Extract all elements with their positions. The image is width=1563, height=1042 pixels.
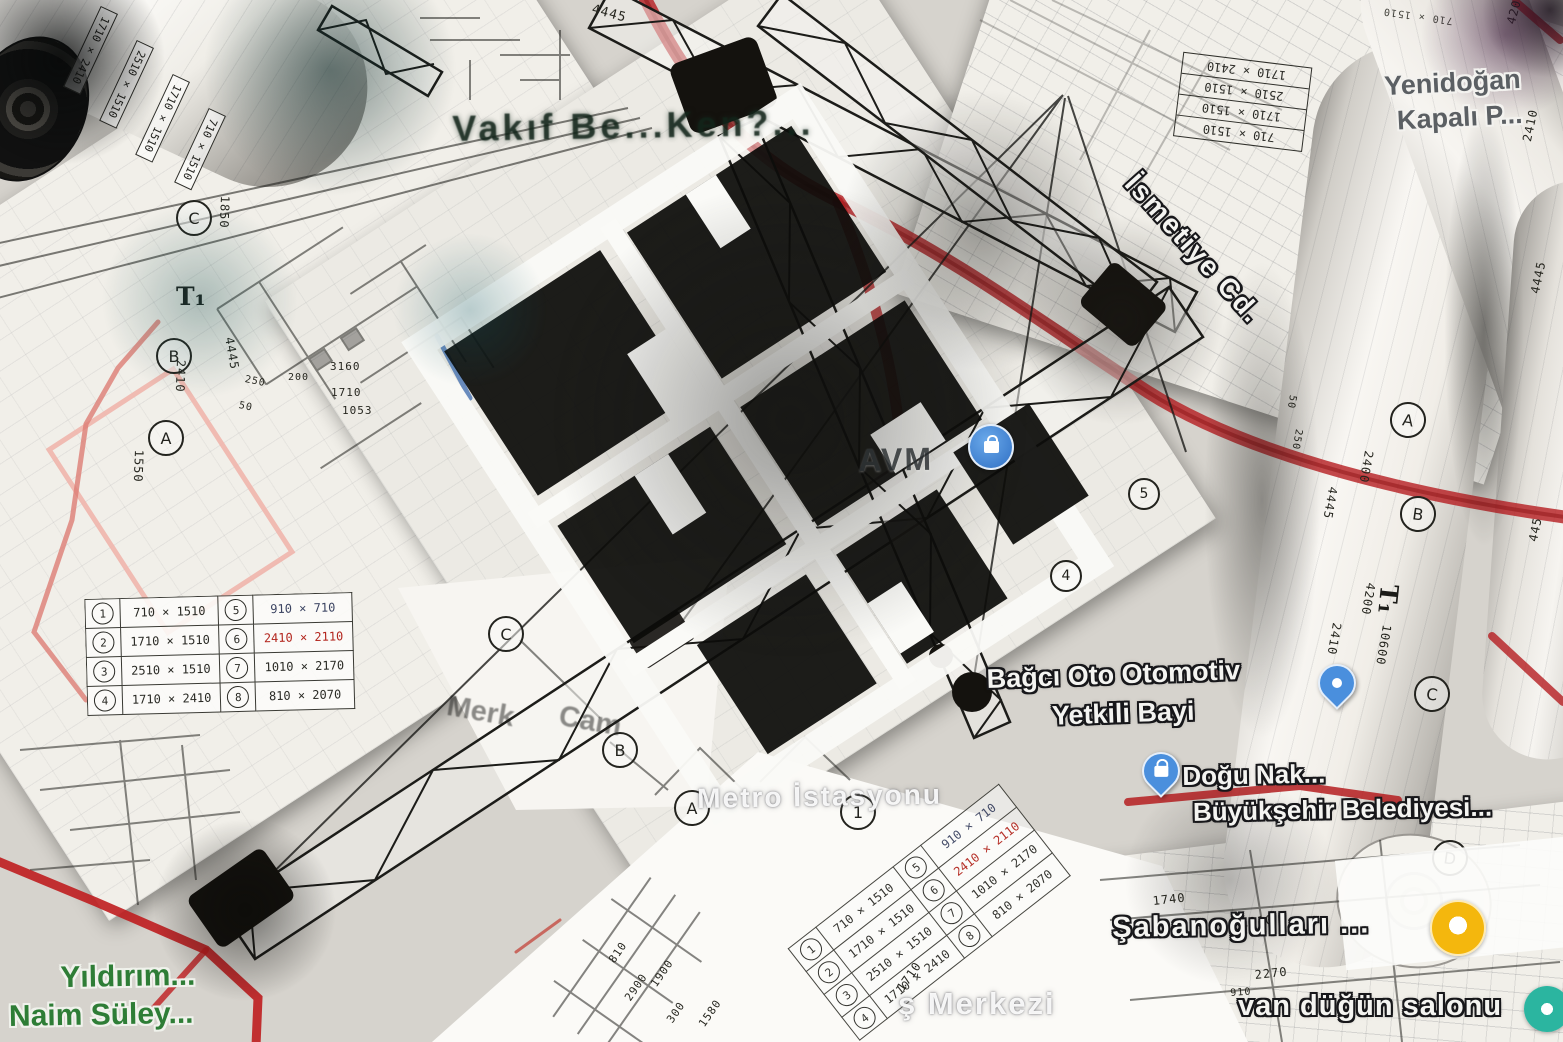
map-label-sabanogullari: Şabanoğulları ... bbox=[1112, 907, 1371, 944]
axis-bubble-4-right: 4 bbox=[1050, 560, 1082, 592]
map-label-yenidogan-line2: Kapalı P... bbox=[1396, 99, 1523, 136]
map-label-bagci-line2: Yetkili Bayi bbox=[1051, 696, 1195, 731]
lock-glyph bbox=[1154, 766, 1168, 777]
map-label-fragment-merk: Merk bbox=[444, 690, 516, 734]
axis-bubble-5-right: 5 bbox=[1128, 478, 1160, 510]
map-label-bagci: Bağcı Oto Otomotiv Yetkili Bayi bbox=[986, 651, 1242, 738]
map-label-bagci-line1: Bağcı Oto Otomotiv bbox=[986, 655, 1240, 694]
t1-mark-left: T₁ bbox=[176, 282, 206, 311]
dim-3160: 3160 bbox=[330, 360, 361, 373]
map-label-dogu-line1: Doğu Nak... bbox=[1182, 759, 1326, 791]
map-label-is-merkezi: ş Merkezi bbox=[898, 986, 1056, 1022]
shopping-poi-icon bbox=[968, 424, 1014, 470]
dim-2410-left: 2410 bbox=[173, 360, 188, 393]
dim-1053: 1053 bbox=[342, 404, 373, 417]
dim-1580-bl: 1580 bbox=[696, 997, 724, 1029]
schedule-table-left: 1 710 × 1510 5 910 × 710 2 1710 × 1510 6… bbox=[84, 592, 355, 716]
map-label-yenidogan: Yenidoğan Kapalı P... bbox=[1290, 62, 1523, 144]
blueprint-map-collage: 1 710 × 1510 5 910 × 710 2 1710 × 1510 6… bbox=[0, 0, 1563, 1042]
map-label-metro-istasyonu: Metro İstasyonu bbox=[697, 779, 942, 815]
map-label-avm: AVM bbox=[858, 441, 933, 479]
dim-1850: 1850 bbox=[217, 196, 232, 229]
map-label-vakif: Vakıf Be...Ken?... bbox=[452, 102, 815, 150]
yellow-poi-icon bbox=[1430, 900, 1486, 956]
axis-bubble-C-bottom: C bbox=[488, 616, 524, 652]
axis-bubble-A-left: A bbox=[148, 420, 184, 456]
map-label-dugun-salonu: van düğün salonu bbox=[1238, 990, 1502, 1023]
axis-bubble-C-left: C bbox=[176, 200, 212, 236]
teal-poi-icon bbox=[1524, 986, 1563, 1032]
map-label-yenidogan-line1: Yenidoğan bbox=[1383, 64, 1521, 101]
pin-dot-glyph bbox=[1332, 678, 1342, 688]
schedule-row: 4 1710 × 2410 8 810 × 2070 bbox=[87, 679, 355, 715]
dim-1900-bl: 1900 bbox=[648, 957, 676, 989]
dim-1710-left: 1710 bbox=[331, 386, 362, 399]
dim-200: 200 bbox=[288, 372, 309, 383]
lock-pin-icon bbox=[1134, 744, 1188, 798]
map-label-dogu-line2: Büyükşehir Belediyesi... bbox=[1193, 792, 1493, 827]
dim-300-bl: 300 bbox=[664, 999, 688, 1025]
map-label-yildirim-line1: Yıldırım... bbox=[60, 959, 196, 994]
shopping-bag-glyph bbox=[984, 441, 999, 453]
dim-1550-left: 1550 bbox=[131, 450, 146, 483]
map-label-yildirim-line2: Naim Süley... bbox=[9, 996, 194, 1032]
dim-2900-bl: 2900 bbox=[622, 971, 650, 1003]
dim-810-bl: 810 bbox=[606, 939, 630, 965]
map-label-dogu-belediyesi: Doğu Nak... Büyükşehir Belediyesi... bbox=[1182, 753, 1492, 831]
dim-4445-top: 4445 bbox=[590, 2, 628, 26]
map-label-yildirim: Yıldırım... Naim Süley... bbox=[8, 957, 196, 1035]
